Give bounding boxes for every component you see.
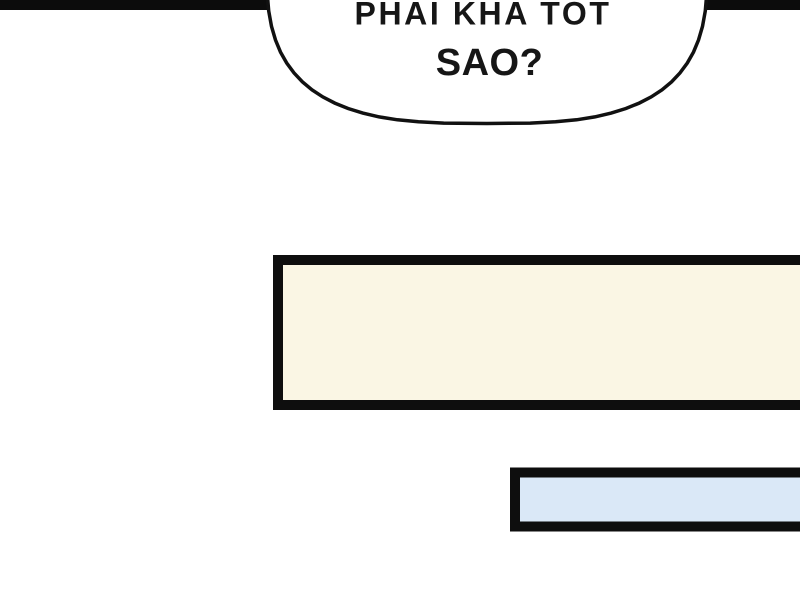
svg-text:SAO?: SAO? [436, 42, 544, 84]
svg-text:PHAI KHA TOT: PHAI KHA TOT [355, 0, 612, 32]
